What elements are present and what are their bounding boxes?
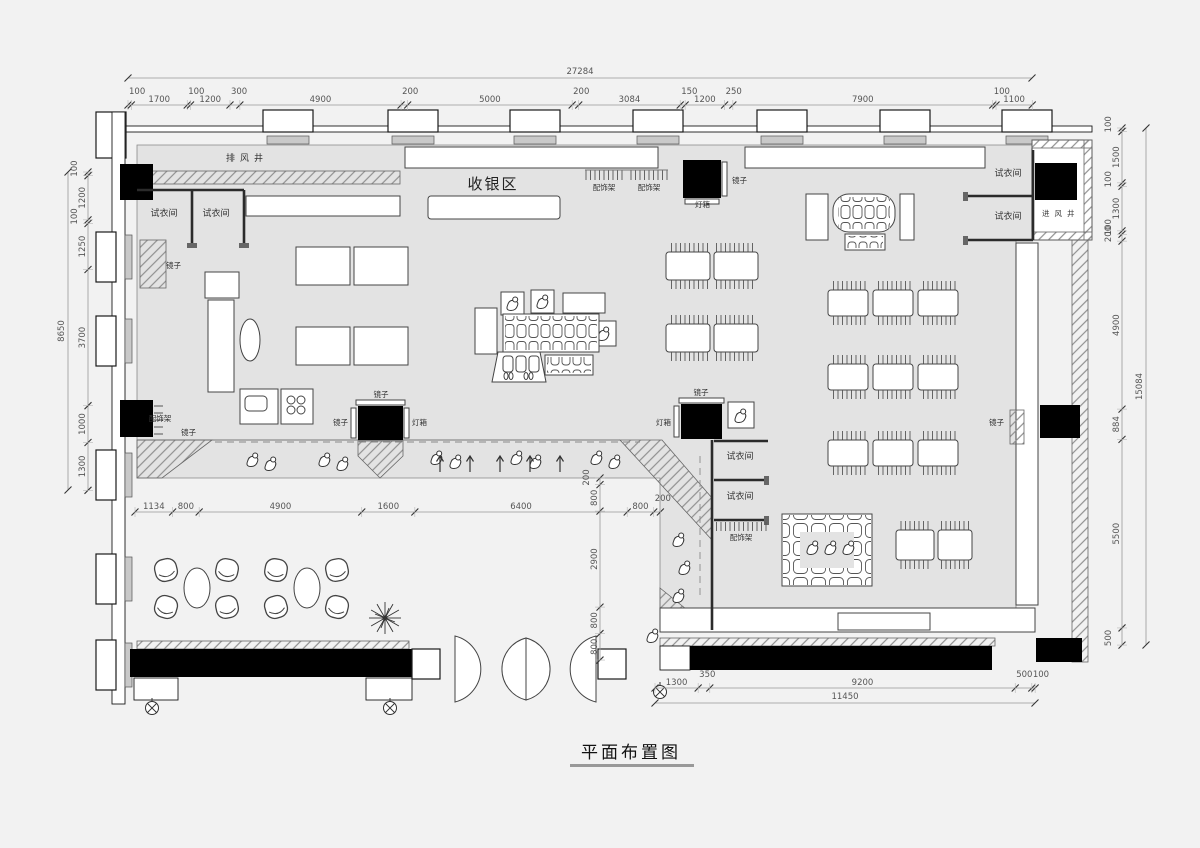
dim-label: 1500	[1112, 146, 1122, 168]
dim-label: 1200	[199, 95, 221, 105]
dim-total-label: 11450	[831, 692, 858, 702]
bottom-right-grid-display	[782, 514, 872, 586]
mirror-label: 镜子	[374, 389, 389, 399]
dim-label: 1000	[78, 413, 88, 435]
lounge-seating	[152, 557, 401, 634]
dim-label: 800	[590, 490, 600, 506]
intake-shaft-label: 进风井	[1042, 208, 1080, 218]
dim-label: 800	[590, 612, 600, 628]
fitting-room-label: 试衣间	[726, 490, 753, 502]
mirror-label: 镜子	[989, 417, 1004, 427]
dim-label: 250	[726, 87, 742, 97]
dim-label: 100	[1104, 171, 1114, 187]
dim-total-label: 27284	[566, 67, 593, 77]
dim-label: 1300	[1112, 198, 1122, 220]
dim-label: 1100	[1003, 95, 1025, 105]
dim-label: 1200	[78, 187, 88, 209]
dim-label: 1200	[694, 95, 716, 105]
dim-label: 500	[1016, 670, 1032, 680]
floor-plan-svg: 排风井 进风井 收银区 试衣间 试衣间 试衣间 试衣间 试衣间 试衣间 镜子 镜…	[0, 0, 1200, 848]
dim-label: 1250	[78, 236, 88, 258]
dim-label: 2900	[590, 548, 600, 570]
dim-total-label: 8650	[57, 320, 67, 342]
walkway-mannequins	[247, 451, 690, 643]
floor-plan-page: { "title": "平面布置图", "labels": { "exhaust…	[0, 0, 1200, 848]
dim-label: 500	[1104, 630, 1114, 646]
dim-label: 800	[178, 502, 194, 512]
light-box-label: 灯箱	[412, 417, 427, 427]
light-box-label: 灯箱	[695, 199, 710, 209]
drawing-title-block: 平面布置图	[570, 743, 694, 767]
accessory-rack-label: 配饰架	[593, 182, 616, 192]
dim-label: 200	[573, 87, 589, 97]
dim-label: 4900	[310, 95, 332, 105]
dim-total-label: 15084	[1135, 373, 1145, 400]
dim-label: 200	[402, 87, 418, 97]
bottom-wall-left	[130, 641, 412, 700]
dim-label: 1300	[78, 456, 88, 478]
fitting-room-label: 试衣间	[994, 210, 1021, 222]
fitting-room-label: 试衣间	[202, 207, 229, 219]
dim-label: 9200	[852, 678, 874, 688]
bottom-wall-right	[660, 638, 1082, 670]
dim-label: 3700	[78, 327, 88, 349]
dim-label: 800	[632, 502, 648, 512]
accessory-rack-label: 配饰架	[638, 182, 661, 192]
dim-label: 100	[1033, 670, 1049, 680]
dim-label: 884	[1112, 416, 1122, 432]
mirror-label: 镜子	[166, 260, 181, 270]
dim-label: 350	[699, 670, 715, 680]
accessory-rack-label: 配饰架	[730, 532, 753, 542]
title-underline	[570, 764, 694, 767]
dim-label: 200	[655, 494, 671, 504]
dim-label: 5000	[479, 95, 501, 105]
light-box-label: 灯箱	[656, 417, 671, 427]
fitting-room-label: 试衣间	[150, 207, 177, 219]
dim-label: 3084	[619, 95, 641, 105]
dim-label: 300	[231, 87, 247, 97]
dim-label: 100	[70, 208, 80, 224]
cashier-area-label: 收银区	[467, 175, 518, 193]
mirror-label: 镜子	[333, 417, 348, 427]
mirror-label: 镜子	[181, 427, 196, 437]
dim-label: 4900	[1112, 314, 1122, 336]
dim-label: 1700	[148, 95, 170, 105]
mirror-label: 镜子	[732, 175, 747, 185]
exhaust-shaft-label: 排风井	[226, 152, 268, 164]
dim-label: 100	[1104, 116, 1114, 132]
cashier-counter	[428, 196, 560, 219]
dim-label: 1300	[666, 678, 688, 688]
dim-label: 200	[582, 469, 592, 485]
dim-label: 200	[1104, 226, 1114, 242]
right-wall	[1072, 232, 1088, 662]
fitting-room-label: 试衣间	[726, 450, 753, 462]
dim-label: 1134	[143, 502, 165, 512]
dim-label: 800	[590, 639, 600, 655]
dim-label: 6400	[510, 502, 532, 512]
accessory-rack-label: 配饰架	[149, 413, 172, 423]
fitting-room-label: 试衣间	[994, 167, 1021, 179]
exhaust-duct	[150, 171, 400, 184]
dim-label: 100	[129, 87, 145, 97]
dim-label: 5500	[1112, 523, 1122, 545]
drawing-title: 平面布置图	[581, 743, 681, 763]
dim-label: 7900	[852, 95, 874, 105]
plant-icon	[369, 602, 401, 634]
dim-label: 4900	[270, 502, 292, 512]
mirror-label: 镜子	[694, 387, 709, 397]
dim-label: 1600	[377, 502, 399, 512]
